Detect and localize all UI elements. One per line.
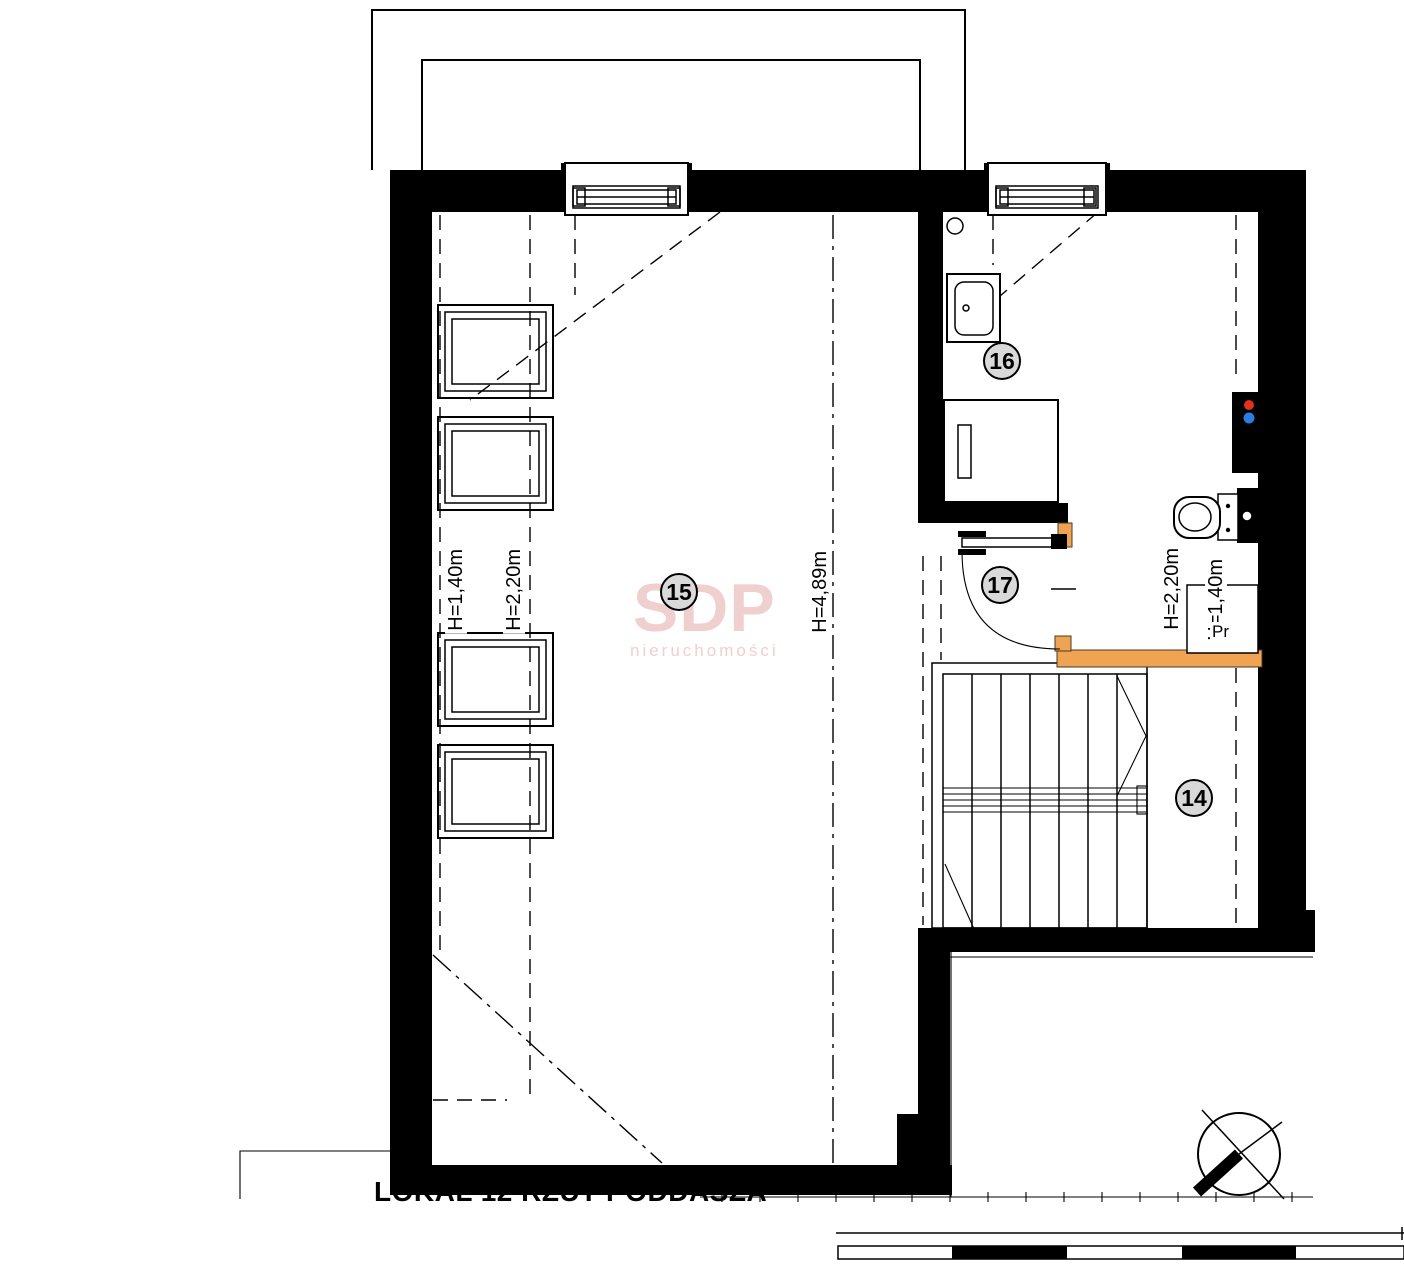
room-badge-15: 15 [660,573,698,611]
north-arrow-icon [1197,1110,1284,1199]
hot-water-icon [1244,400,1254,410]
floor-plan: LOKAL 12 RZUT PODDASZA SDP nieruchomości [0,0,1404,1264]
eaves-line [240,1151,390,1199]
dormer-window-right [984,163,1110,215]
cold-water-icon [1244,413,1255,424]
skylight [438,745,553,838]
toilet-icon [1174,488,1258,543]
plan-linework [0,0,1404,1264]
shower-tray-icon [944,400,1058,502]
skylight [438,305,553,398]
roof-outline [372,10,965,170]
height-label-center: H=4,89m [809,548,831,636]
skylight [438,417,553,510]
scale-bar [836,1227,1404,1259]
staircase [932,663,1147,929]
room-badge-17: 17 [981,566,1019,604]
skylight [438,633,553,726]
height-label-left-mid: H=2,20m [503,546,525,634]
dormer-window-left [561,163,692,215]
room-badge-14: 14 [1175,779,1213,817]
height-label-left-low: H=1,40m [445,546,467,634]
wall-face-lines [945,952,1313,1197]
pr-label: Pr [1210,622,1231,642]
vent-pipe-icon [947,218,963,234]
room-badge-16: 16 [983,342,1021,380]
washbasin-icon [947,274,1000,342]
height-label-right-mid: H=2,20m [1161,545,1183,633]
